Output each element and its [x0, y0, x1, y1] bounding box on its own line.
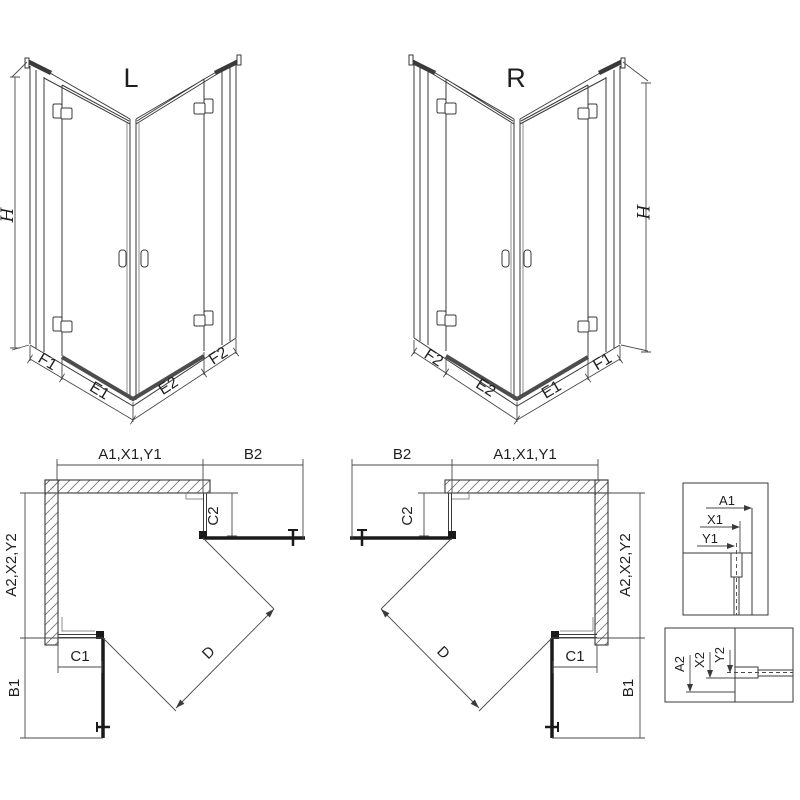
wall-top [45, 480, 210, 493]
door-handle-icons [119, 250, 148, 267]
wall-profile-cap-left [409, 55, 413, 65]
side-depth-label: A2,X2,Y2 [617, 533, 634, 596]
diagonal-label: D [199, 643, 219, 663]
iso-view-right: R H F2 E2 E1 F1 [409, 55, 652, 424]
fixed-side-label: C2 [205, 506, 222, 525]
shower-enclosure-technical-diagram: L H F1 E1 E2 F2 [0, 0, 800, 800]
segment-label-e2: E2 [156, 374, 182, 399]
wall-top [445, 480, 608, 493]
iso-right-width-dimensions: F2 E2 E1 F1 [411, 340, 623, 424]
detail-label-y2: Y2 [712, 647, 727, 663]
hinge-icons [437, 99, 597, 332]
iso-right-title: R [506, 63, 526, 93]
diagonal-label: D [433, 643, 453, 663]
segment-label-f2: F2 [421, 346, 446, 370]
fixed-side-label: C2 [399, 506, 416, 525]
door-width-label: B2 [244, 446, 262, 463]
iso-left-height-dimension: H [0, 62, 29, 350]
door-width-label: B2 [393, 446, 411, 463]
detail-label-y1: Y1 [702, 531, 718, 546]
door-handle-icons [502, 250, 531, 267]
iso-right-height-dimension: H [621, 62, 652, 352]
fixed-bottom-label: C1 [565, 648, 584, 665]
iso-view-left: L H F1 E1 E2 F2 [0, 55, 241, 424]
plan-view-right: B2 A1,X1,Y1 A2,X2,Y2 B1 C2 C1 D [350, 446, 645, 738]
wall-right [595, 480, 608, 645]
height-label: H [632, 204, 652, 221]
wall-profile-cap-right [237, 55, 241, 65]
iso-left-title: L [123, 63, 138, 93]
top-width-label: A1,X1,Y1 [493, 446, 556, 463]
detail-box-top: A1 X1 Y1 [683, 483, 768, 615]
door-depth-label: B1 [6, 679, 23, 697]
door-handle-icons [96, 529, 298, 732]
threshold-strip [446, 356, 588, 399]
segment-label-f1: F1 [35, 350, 60, 374]
iso-left-width-dimensions: F1 E1 E2 F2 [27, 339, 238, 424]
height-label: H [0, 206, 18, 223]
wall-left [45, 480, 58, 645]
detail-label-x1: X1 [707, 512, 723, 527]
detail-label-a1: A1 [719, 493, 735, 508]
detail-box-bottom: A2 X2 Y2 [665, 628, 793, 702]
door-handle-icons [357, 529, 559, 732]
segment-label-f1: F1 [590, 350, 615, 374]
hinge-icons [53, 99, 213, 332]
plan-view-left: A1,X1,Y1 B2 A2,X2,Y2 B1 C2 C1 D [3, 446, 305, 738]
fixed-bottom-label: C1 [70, 648, 89, 665]
threshold-strip [62, 356, 204, 399]
segment-label-f2: F2 [206, 344, 231, 368]
detail-label-x2: X2 [692, 652, 707, 668]
detail-label-a2: A2 [672, 656, 687, 672]
side-depth-label: A2,X2,Y2 [3, 533, 20, 596]
door-depth-label: B1 [620, 679, 637, 697]
top-width-label: A1,X1,Y1 [98, 446, 161, 463]
